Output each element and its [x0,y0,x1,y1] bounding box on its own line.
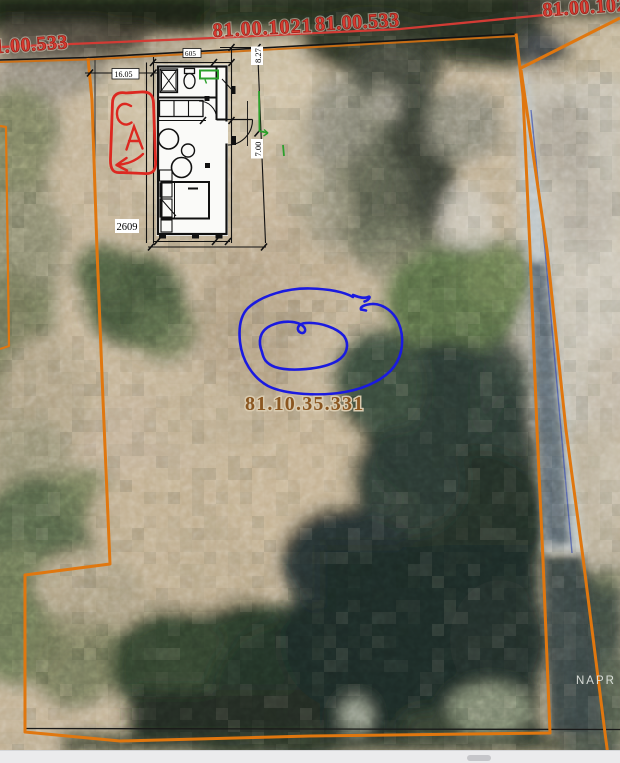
svg-text:2609: 2609 [117,222,138,233]
svg-text:7.00: 7.00 [253,142,263,157]
svg-text:605: 605 [185,50,196,58]
svg-text:81.00.533: 81.00.533 [315,9,401,35]
svg-text:8.27: 8.27 [253,48,263,63]
svg-text:NAPR: NAPR [576,675,616,687]
svg-text:81.10.35.331: 81.10.35.331 [245,393,364,415]
svg-text:16.05: 16.05 [115,70,133,79]
